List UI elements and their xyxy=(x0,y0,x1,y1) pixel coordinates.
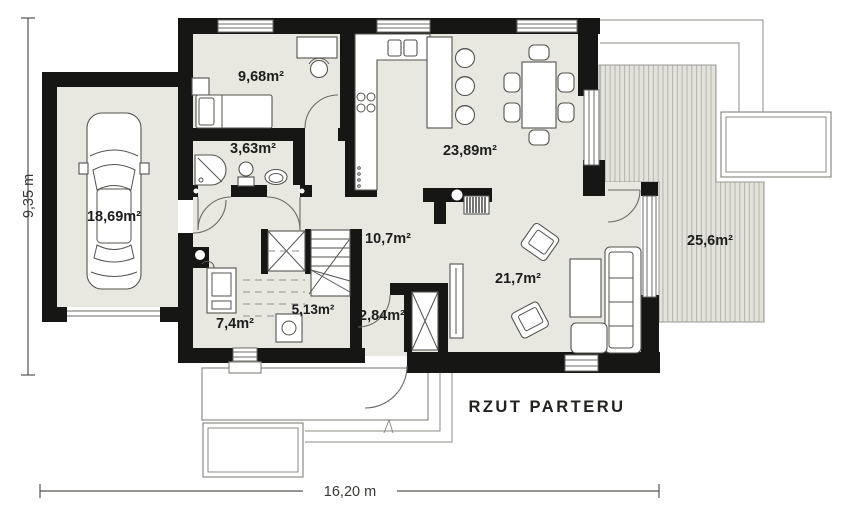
window-utility xyxy=(233,348,257,361)
wood-storage-hatch xyxy=(467,197,485,213)
room-label-living: 21,7m² xyxy=(495,271,541,287)
room-label-bedroom: 9,68m² xyxy=(238,69,284,85)
sink-basin xyxy=(388,40,401,56)
stairs xyxy=(309,230,350,296)
room-label-hall: 10,7m² xyxy=(365,231,411,247)
sink-basin xyxy=(404,40,417,56)
room-label-bathroom: 3,63m² xyxy=(230,141,276,157)
sink xyxy=(265,170,287,185)
wardrobe xyxy=(412,292,438,350)
dimension-vertical: 9,35 m xyxy=(21,18,37,375)
hall-partition xyxy=(450,264,463,338)
shower xyxy=(195,155,226,185)
floor-plan-page: 9,35 m 16,20 m 18,69m² 9,68m² 3,63m² 23,… xyxy=(0,0,849,520)
terrace-glass-door xyxy=(584,90,599,165)
hinge-dot xyxy=(300,189,305,194)
window-bedroom xyxy=(218,20,273,32)
kitchen-island xyxy=(427,37,475,128)
stove-icon xyxy=(452,190,463,201)
window-kitchen xyxy=(377,20,430,32)
hinge-dot xyxy=(194,189,199,194)
garage-gate xyxy=(67,311,160,316)
room-label-kitchen-dining: 23,89m² xyxy=(443,143,497,159)
toilet xyxy=(238,162,254,186)
window-living-south xyxy=(565,355,598,371)
room-label-garage: 18,69m² xyxy=(87,209,141,225)
entrance-porch xyxy=(202,368,452,477)
car xyxy=(79,113,149,289)
room-label-vestibule: 2,84m² xyxy=(359,308,405,324)
washing-machine xyxy=(276,314,302,342)
room-label-utility: 7,4m² xyxy=(216,316,254,332)
coffee-table xyxy=(570,259,601,317)
width-dimension-label: 16,20 m xyxy=(324,484,376,500)
dimension-horizontal: 16,20 m xyxy=(40,484,659,500)
room-label-terrace: 25,6m² xyxy=(687,233,733,249)
utility-step xyxy=(229,362,261,373)
window-dining xyxy=(517,20,577,32)
shaft xyxy=(268,231,305,271)
floor-plan-drawing: 9,35 m 16,20 m 18,69m² 9,68m² 3,63m² 23,… xyxy=(0,0,849,520)
room-label-staircase: 5,13m² xyxy=(292,302,335,317)
side-terrace-pad xyxy=(721,112,831,177)
height-dimension-label: 9,35 m xyxy=(21,174,37,218)
plan-title: RZUT PARTERU xyxy=(468,398,625,416)
window-living-east xyxy=(643,196,656,297)
